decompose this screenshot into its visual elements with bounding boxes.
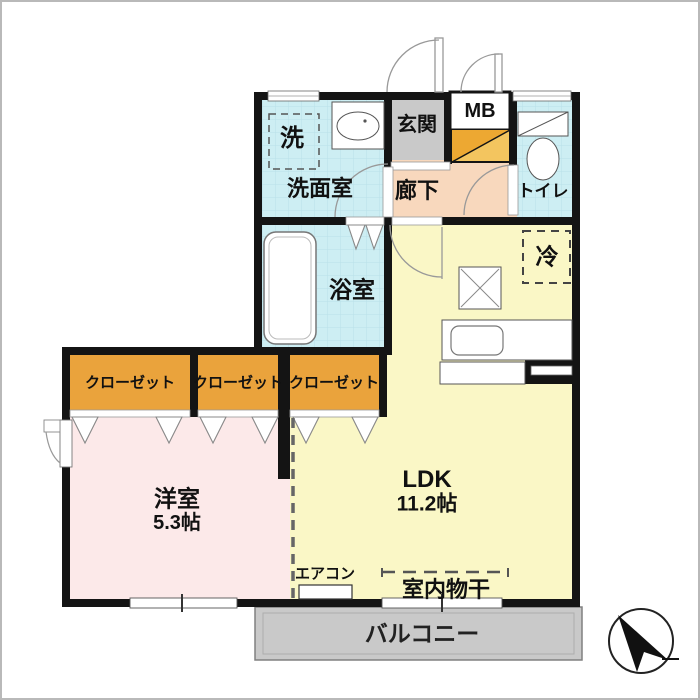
western-room-label: 洋室 xyxy=(154,488,200,511)
north-arrow-icon xyxy=(609,609,679,673)
ldk-door-sill xyxy=(392,217,442,225)
kitchen-lower-cabinet xyxy=(440,362,525,384)
washroom-door-opening xyxy=(383,167,393,217)
shoe-cabinet xyxy=(452,130,510,162)
western-room-south-window xyxy=(130,598,237,608)
refrigerator-label: 冷 xyxy=(536,246,559,269)
mb-door-arc xyxy=(461,54,499,92)
air-conditioner-label: エアコン xyxy=(295,567,355,582)
western-room-west-window xyxy=(60,420,72,467)
toilet-label: トイレ xyxy=(518,183,569,200)
entrance-step xyxy=(391,162,450,170)
closet-1-label: クローゼット xyxy=(85,376,175,391)
closet-3-label: クローゼット xyxy=(289,376,379,391)
toilet-door-opening xyxy=(508,165,518,215)
balcony-label: バルコニー xyxy=(365,623,480,646)
bathroom-label: 浴室 xyxy=(329,279,375,302)
bathtub xyxy=(264,232,316,344)
meter-box-label: MB xyxy=(464,101,495,121)
floorplan-drawing xyxy=(2,2,700,700)
floorplan-image: 洗 洗面室 玄関 MB トイレ 廊下 浴室 冷 クローゼット クローゼット クロ… xyxy=(0,0,700,700)
entrance-label: 玄関 xyxy=(397,115,437,135)
kitchen-sink xyxy=(451,326,503,355)
closet-2-label: クローゼット xyxy=(193,376,283,391)
west-window-leaf xyxy=(44,420,60,432)
entrance-door-leaf xyxy=(435,38,443,92)
ldk-label: LDK xyxy=(402,468,451,492)
air-conditioner-box xyxy=(299,585,352,599)
entrance-door-arc xyxy=(387,40,439,92)
washroom-label: 洗面室 xyxy=(287,178,353,200)
hallway-label: 廊下 xyxy=(395,180,439,202)
mb-door-leaf xyxy=(495,54,502,92)
ldk-size-label: 11.2帖 xyxy=(397,494,458,515)
indoor-laundry-label: 室内物干 xyxy=(402,579,490,601)
closet-2-sill xyxy=(198,410,278,417)
western-room-size-label: 5.3帖 xyxy=(153,513,201,533)
sink-vanity xyxy=(332,102,384,149)
washer-label: 洗 xyxy=(280,127,304,151)
bathroom-door-sill xyxy=(346,217,384,225)
closet-1-sill xyxy=(70,410,190,417)
kitchen-side-window xyxy=(531,366,572,375)
stove xyxy=(459,267,501,309)
west-window-swing-arc xyxy=(46,432,60,463)
closet-3-sill xyxy=(290,410,379,417)
